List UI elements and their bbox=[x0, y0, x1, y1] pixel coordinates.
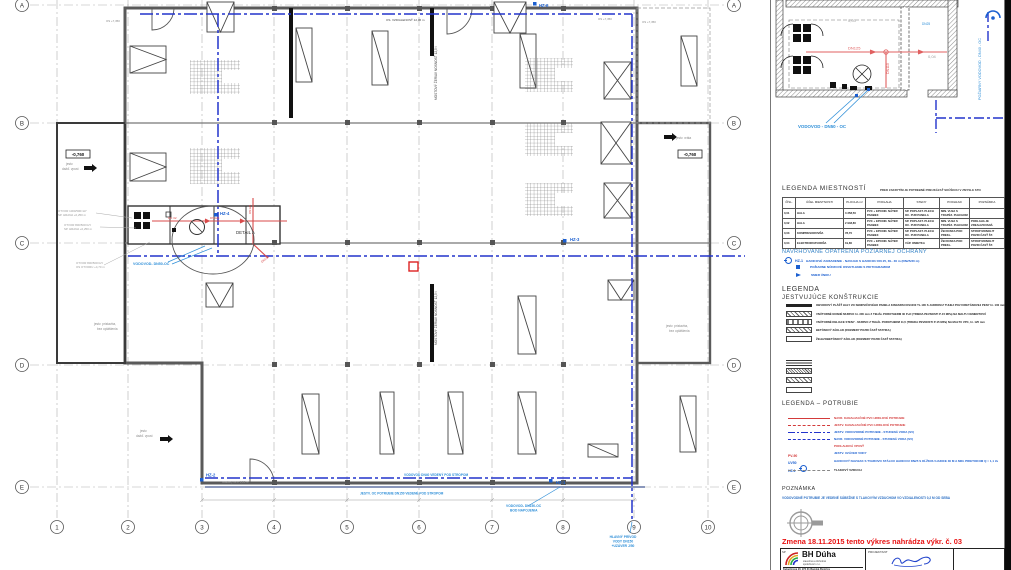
note-text: jestv. prístavba, bbox=[93, 322, 116, 326]
room-legend-table: ČÍSL.ÚČEL MIESTNOSTI PLOCHA m²PODLAHA ST… bbox=[782, 197, 1005, 249]
axis-label: E bbox=[732, 484, 736, 491]
note-text: MOSTOVÝ ŽERIAV NOSNOSŤ 12,5 t bbox=[433, 291, 438, 345]
note-text: jestv. bbox=[65, 162, 73, 166]
signature bbox=[888, 554, 934, 568]
drawing-sheet: A B C D E A B C D E 1 2 3 4 5 6 7 8 9 10 bbox=[0, 0, 1011, 570]
note-text: MOSTOVÝ ŽERIAV NOSNOSŤ 12,5 t bbox=[433, 46, 438, 100]
room-legend-title: LEGENDA MIESTNOSTÍ bbox=[782, 185, 866, 192]
note-text: jestv. bbox=[139, 429, 147, 433]
legend-item-text: HADICOVÝ NAVIJAK S TVAROVO STÁLOU HADICO… bbox=[834, 459, 998, 463]
pipe-label: VODOVOD DN40 VEDENÝ POD STROPOM bbox=[404, 472, 468, 477]
axis-label: 4 bbox=[272, 524, 276, 531]
legend-item: BETÓNOVÝ ZÁKLAD (ROZMERY POZRI ČASŤ STAT… bbox=[786, 327, 891, 333]
red-marker-box bbox=[409, 262, 418, 271]
piping-legend-title: LEGENDA – POTRUBIE bbox=[782, 401, 859, 407]
detail-drawing: 0,03 0,04 DN125 DN110 DN25 VODOVOD - DN5… bbox=[776, 0, 1004, 133]
level-label: -0,760 bbox=[72, 152, 85, 157]
hz-label: HZ-2 bbox=[206, 473, 216, 478]
constructions-title: LEGENDA bbox=[782, 286, 820, 293]
note-text: jestv. vráta bbox=[675, 136, 691, 140]
legend-item: VNÚTORNÉ DELIACE STENY - MURIVO Z TEHÁL … bbox=[786, 319, 985, 325]
uv50-code: UV50 bbox=[788, 451, 830, 455]
note-title: POZNÁMKA bbox=[782, 486, 815, 492]
floor-plan-canvas: A B C D E A B C D E 1 2 3 4 5 6 7 8 9 10 bbox=[0, 0, 1011, 570]
axis-label: 9 bbox=[632, 524, 636, 531]
hz-label: HZ-1 bbox=[556, 480, 566, 485]
axis-label: 3 bbox=[200, 524, 204, 531]
emergency-light-icon bbox=[796, 265, 800, 269]
legend-item-text: JESTV. UZÁVER VODY bbox=[834, 451, 867, 455]
pipe-label: +UZÁVER J/50 bbox=[612, 543, 635, 548]
legend-item: TLAKOVÝ VZDUCH bbox=[788, 468, 862, 472]
company-name: BH Dúha bbox=[802, 550, 836, 559]
note-text: VODOVODNÉ POTRUBIE JE VEDENÉ SÚBEŽNE S T… bbox=[782, 496, 950, 500]
detail-a-label: DETAIL A bbox=[236, 230, 255, 235]
legend-item-text: VNÚTORNÉ NOSNÉ MURIVO hr. 300 mm Z TEHÁL… bbox=[816, 312, 986, 316]
legend-item: UV50 JESTV. UZÁVER VODY bbox=[788, 451, 867, 455]
partition-swatch bbox=[786, 319, 812, 325]
fire-item: HZ-1 HADICOVÉ ZARIADENIE - NAVIJAK S HAD… bbox=[785, 257, 919, 264]
note-text: jestv. prístavba, bbox=[665, 324, 688, 328]
extra-swatch bbox=[786, 360, 812, 366]
hz-label: HZ-3 bbox=[570, 237, 580, 242]
blue-dashdot-line-sample bbox=[788, 430, 830, 434]
pipe-label: BOD NAPOJENIA bbox=[510, 509, 538, 513]
axis-label: 1 bbox=[55, 524, 59, 531]
legend-item-text: NAVR. KANALIZAČNÉ PVC HRDLOVÉ POTRUBIE bbox=[834, 416, 904, 420]
red-dashed-line-sample bbox=[788, 423, 830, 427]
pipe-label: VODOVOD- DN150-OC bbox=[506, 504, 542, 508]
axis-label: B bbox=[20, 120, 24, 127]
hz-label: HZ-6 bbox=[539, 3, 549, 8]
blue-leaders bbox=[168, 246, 632, 533]
legend-item-text: VNÚTORNÉ DELIACE STENY - MURIVO Z TEHÁL … bbox=[816, 320, 985, 324]
axis-label: D bbox=[732, 362, 737, 369]
axis-label: C bbox=[732, 240, 737, 247]
legend-item-text: JESTV. VODOVODNÉ POTRUBIE - STUDENÁ VODA… bbox=[834, 430, 914, 434]
legend-item-text: JESTV. KANALIZAČNÉ PVC HRDLOVÉ POTRUBIE bbox=[834, 423, 905, 427]
table-header-row: ČÍSL.ÚČEL MIESTNOSTI PLOCHA m²PODLAHA ST… bbox=[783, 198, 1005, 209]
masonry-hatch-swatch bbox=[786, 311, 812, 317]
legend-item: VNÚTORNÉ NOSNÉ MURIVO hr. 300 mm Z TEHÁL… bbox=[786, 311, 986, 317]
pipe-label: DN125 bbox=[210, 216, 220, 220]
note-text: SP. HRANA +0,250 m bbox=[58, 213, 87, 217]
note-text: OS +7,350 bbox=[598, 17, 612, 21]
pipe-label: DN 32 bbox=[168, 216, 177, 220]
hose-reel-icon bbox=[785, 257, 792, 264]
note-text: osadený vo v. 1,20 m bbox=[222, 480, 249, 484]
blue-dashed-line-sample bbox=[788, 437, 830, 441]
note-text: bez opláštenia bbox=[97, 327, 118, 331]
legend-item-text: PODLAHOVÁ VPUSŤ bbox=[834, 444, 864, 448]
axis-label: 2 bbox=[126, 524, 130, 531]
note-text: OS +7,350 bbox=[642, 20, 656, 24]
legend-item-text: ŽELEZOBETÓNOVÝ ZÁKLAD (ROZMERY POZRI ČAS… bbox=[816, 337, 902, 341]
escape-arrow-icon bbox=[796, 273, 801, 277]
legend-item: JESTV. VODOVODNÉ POTRUBIE - STUDENÁ VODA… bbox=[788, 430, 914, 434]
constructions-subtitle: JESTVUJÚCE KONŠTRUKCIE bbox=[782, 295, 879, 301]
note-text: OS +7,350 bbox=[106, 19, 120, 23]
legend-item: JESTV. KANALIZAČNÉ PVC HRDLOVÉ POTRUBIE bbox=[788, 423, 905, 427]
pipe-label: DN25 bbox=[922, 22, 930, 26]
note-text: dažď. vpust bbox=[62, 167, 79, 171]
note-text: SP. HRANA +0,250 m bbox=[64, 227, 93, 231]
legend-item: PV-90 PODLAHOVÁ VPUSŤ bbox=[788, 444, 864, 448]
axis-label: 7 bbox=[490, 524, 494, 531]
legend-item: ŽELEZOBETÓNOVÝ ZÁKLAD (ROZMERY POZRI ČAS… bbox=[786, 336, 902, 342]
legend-item: NAVR. VODOVODNÉ POTRUBIE - STUDENÁ VODA … bbox=[788, 437, 913, 441]
hz1-code: HZ-1 bbox=[788, 459, 830, 463]
pipe-label: VODY DN150 bbox=[613, 540, 634, 544]
concrete-hatch-swatch bbox=[786, 327, 812, 333]
pipe-label: VODOVOD- DN50-OC bbox=[133, 262, 170, 266]
table-row: 0,01HALA 3 358,50PVC + EPOXID. NÁTER PAN… bbox=[783, 209, 1005, 219]
title-block-empty-cell bbox=[954, 549, 1004, 570]
note-text: dažď. vpust bbox=[136, 434, 153, 438]
note-text: bez opláštenia bbox=[669, 329, 690, 333]
fire-item-text: HADICOVÉ ZARIADENIE - NAVIJAK S HADICOU … bbox=[806, 259, 919, 263]
axis-label: E bbox=[20, 484, 24, 491]
fire-item-text: SMER ÚNIKU bbox=[811, 273, 831, 277]
note-text: OS. VZDIALENOSŤ 12,36 m bbox=[386, 17, 425, 22]
table-row: 0,03KOMPRESOROVŇA 78,70PVC + EPOXID. NÁT… bbox=[783, 229, 1005, 239]
legend-item-text: OBVODOVÝ PLÁŠŤ HALY ZO SENDVIČOVÉHO PANE… bbox=[816, 303, 1005, 307]
fire-item: POŽIARNE NÚDZOVÉ OSVETLENIE S PIKTOGRAMO… bbox=[796, 265, 890, 269]
axis-label: 10 bbox=[705, 524, 712, 531]
title-block-designer-cell: PROJEKTANT bbox=[866, 549, 954, 570]
title-block: SP BH Dúha stavebná a obchodná spoločnos… bbox=[780, 548, 1005, 570]
pipe-label: VODOVOD - DN50 - OC bbox=[798, 124, 847, 129]
legend-item: HZ-1 HADICOVÝ NAVIJAK S TVAROVO STÁLOU H… bbox=[788, 459, 998, 463]
gray-dashed-line-sample bbox=[788, 468, 830, 472]
revision-note: Zmena 18.11.2015 tento výkres nahrádza v… bbox=[782, 537, 962, 546]
pipe-label: JESTV. OC POTRUBIE DN150 VEDENÉ POD STRO… bbox=[360, 491, 444, 496]
rainbow-logo bbox=[785, 551, 800, 566]
fire-item: SMER ÚNIKU bbox=[796, 273, 831, 277]
reinforced-concrete-swatch bbox=[786, 336, 812, 342]
pipe-label: DN110 bbox=[886, 63, 890, 74]
hz-label: HZ-4 bbox=[220, 211, 230, 216]
sheet-divider-line bbox=[770, 0, 771, 570]
designer-label: PROJEKTANT bbox=[868, 550, 888, 554]
axis-label: 8 bbox=[561, 524, 565, 531]
company-address: Kukučínova 20, 974 01 Banská Bystrica bbox=[783, 567, 863, 570]
extra-swatch bbox=[786, 377, 812, 383]
axis-label: 5 bbox=[345, 524, 349, 531]
sheet-edge bbox=[1005, 0, 1011, 570]
note-text: OS OTVORU +4,70 m bbox=[76, 265, 105, 269]
room-number: 0,04 bbox=[928, 54, 937, 59]
red-solid-line-sample bbox=[788, 416, 830, 420]
north-compass-icon bbox=[785, 508, 825, 538]
sandwich-panel-swatch bbox=[786, 304, 812, 307]
axis-label: 6 bbox=[417, 524, 421, 531]
company-subtitle: spoločnosť s r.o. bbox=[803, 563, 821, 566]
legend-item: OBVODOVÝ PLÁŠŤ HALY ZO SENDVIČOVÉHO PANE… bbox=[786, 303, 1005, 307]
legend-item-text: BETÓNOVÝ ZÁKLAD (ROZMERY POZRI ČASŤ STAT… bbox=[816, 328, 891, 332]
title-block-company-cell: SP BH Dúha stavebná a obchodná spoločnos… bbox=[781, 549, 866, 570]
legend-item: NAVR. KANALIZAČNÉ PVC HRDLOVÉ POTRUBIE bbox=[788, 416, 904, 420]
level-label: -0,760 bbox=[684, 152, 697, 157]
pipe-label: POŽIARNY VODOVOD - DN40 - OC bbox=[977, 38, 982, 100]
room-number: 0,03 bbox=[848, 18, 857, 23]
extra-swatch bbox=[786, 387, 812, 393]
fire-item-text: POŽIARNE NÚDZOVÉ OSVETLENIE S PIKTOGRAMO… bbox=[810, 265, 890, 269]
fire-item-code: HZ-1 bbox=[795, 259, 803, 263]
pipe-label: DN125 bbox=[248, 204, 252, 214]
pipe-label: DN125 bbox=[848, 46, 861, 51]
axis-label: B bbox=[732, 120, 736, 127]
table-row: 0,04ELEKTROROZVODŇA 19,80PVC + EPOXID. N… bbox=[783, 239, 1005, 249]
pipe-label: HLAVNÝ PRÍVOD bbox=[610, 534, 637, 539]
pv90-code: PV-90 bbox=[788, 444, 830, 448]
fire-legend-title: NAVRHOVANÉ OPATRENIA POŽIARNEJ OCHRANY bbox=[782, 249, 927, 255]
axis-label: D bbox=[20, 362, 25, 369]
dimension-line bbox=[200, 498, 637, 502]
legend-item-text: TLAKOVÝ VZDUCH bbox=[834, 468, 862, 472]
extra-swatch bbox=[786, 368, 812, 374]
legend-item-text: NAVR. VODOVODNÉ POTRUBIE - STUDENÁ VODA … bbox=[834, 437, 913, 441]
axis-label: C bbox=[20, 240, 25, 247]
room-legend-note: PRED ZAKRYTÍM JE POTREBNÉ PREUKÁZAŤ SKÚŠ… bbox=[880, 188, 981, 192]
table-row: 0,02HALA 2 948,80PVC + EPOXID. NÁTER PAN… bbox=[783, 219, 1005, 229]
